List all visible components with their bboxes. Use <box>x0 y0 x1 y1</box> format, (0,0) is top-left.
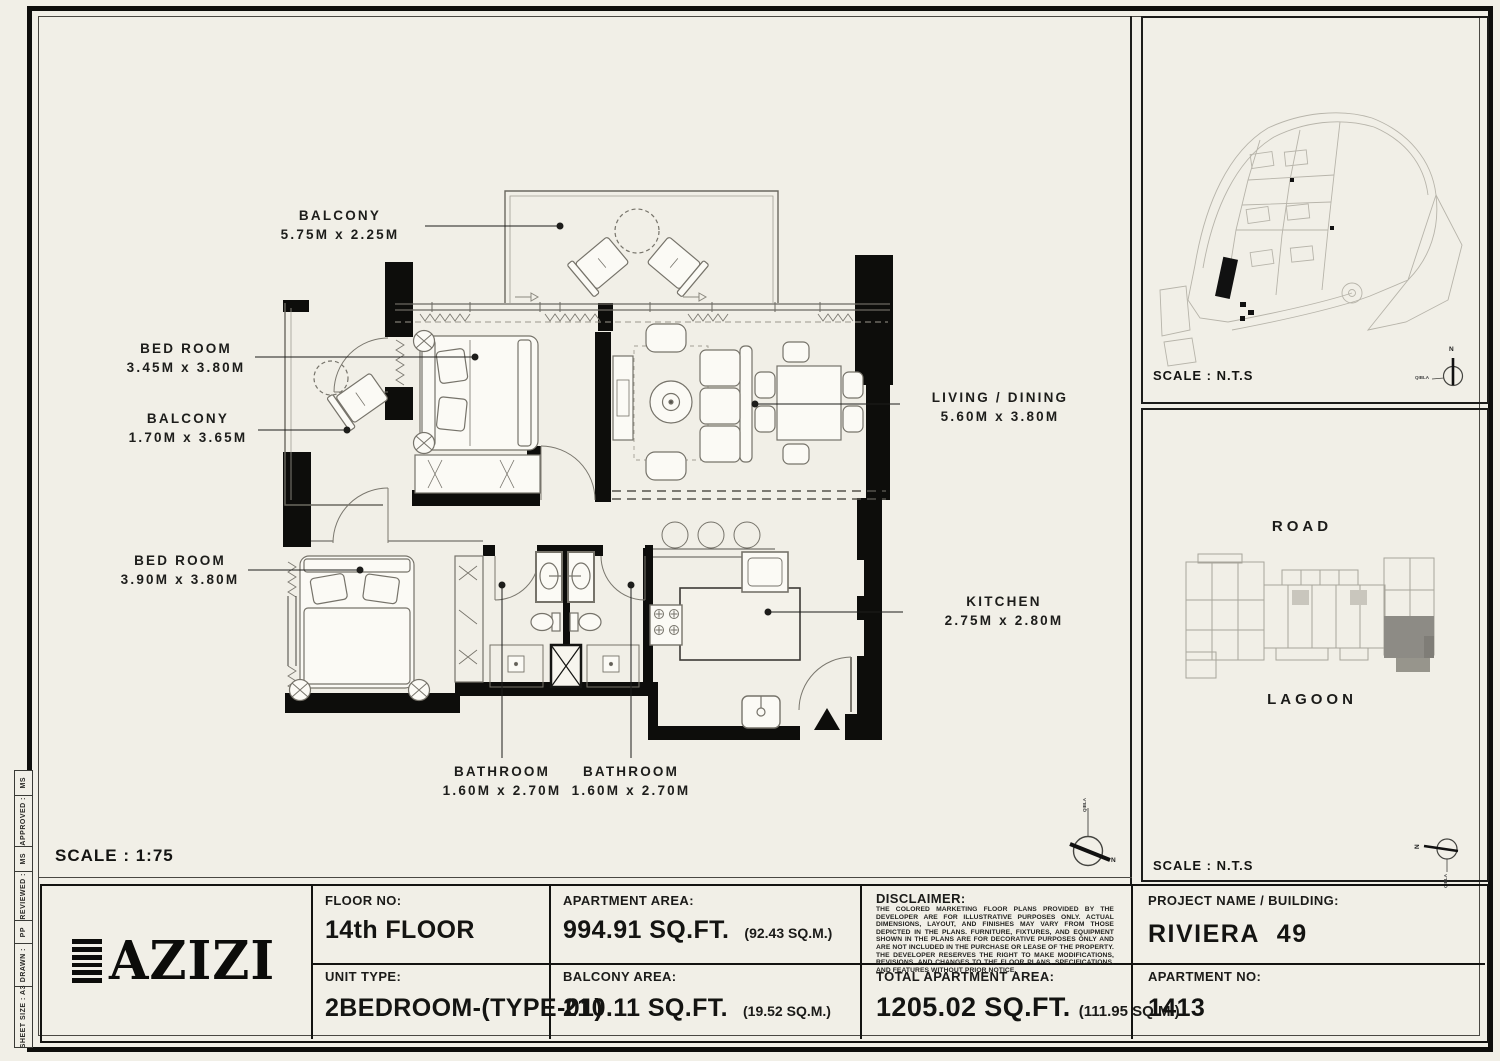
project-name-value: RIVIERA 49 <box>1148 920 1308 949</box>
revision-cell: MS <box>14 770 33 795</box>
revision-cell: MS <box>14 846 33 871</box>
disclaimer-label: DISCLAIMER: <box>876 891 966 906</box>
revision-cell: SHEET SIZE : A3 <box>14 986 33 1048</box>
lagoon-label: LAGOON <box>1212 691 1412 708</box>
location-map-scale-label: SCALE : N.T.S <box>1153 858 1253 873</box>
compass-north-label: N <box>1111 857 1116 864</box>
room-label-balcony-top: BALCONY5.75M x 2.25M <box>240 206 440 244</box>
room-label-bedroom-2: BED ROOM3.90M x 3.80M <box>80 551 280 589</box>
apartment-area-value-row: 994.91 SQ.FT. (92.43 SQ.M.) <box>563 916 832 945</box>
balcony-area-metric: (19.52 SQ.M.) <box>743 1003 831 1019</box>
apartment-no-value: 1413 <box>1148 994 1205 1023</box>
site-map-compass-qibla: QIBLA <box>1415 375 1429 380</box>
compass-qibla-label: QIBLA <box>1082 798 1087 812</box>
total-area-value-row: 1205.02 SQ.FT. (111.95 SQ.M.) <box>876 992 1180 1023</box>
total-area-value: 1205.02 SQ.FT. <box>876 992 1071 1023</box>
apartment-area-metric: (92.43 SQ.M.) <box>744 925 832 941</box>
road-label: ROAD <box>1202 518 1402 535</box>
apartment-no-label: APARTMENT NO: <box>1148 969 1261 984</box>
location-map-compass-north: N <box>1414 844 1421 849</box>
apartment-area-label: APARTMENT AREA: <box>563 893 694 908</box>
title-block-divider <box>311 884 313 1039</box>
room-label-living-dining: LIVING / DINING5.60M x 3.80M <box>900 388 1100 426</box>
azizi-logo-bars-icon <box>72 939 102 983</box>
room-label-bathroom-2: BATHROOM1.60M x 2.70M <box>531 762 731 800</box>
balcony-area-value-row: 210.11 SQ.FT. (19.52 SQ.M.) <box>563 994 831 1023</box>
floor-no-label: FLOOR NO: <box>325 893 402 908</box>
project-name-label: PROJECT NAME / BUILDING: <box>1148 893 1339 908</box>
plan-scale-label: SCALE : 1:75 <box>55 846 174 866</box>
revision-strip: MS APPROVED : MS REVIEWED : PP DRAWN : S… <box>14 770 33 1048</box>
title-block-divider <box>860 884 862 1039</box>
azizi-logo: AZIZI <box>72 930 282 992</box>
disclaimer-text: THE COLORED MARKETING FLOOR PLANS PROVID… <box>876 906 1114 974</box>
room-label-balcony-left: BALCONY1.70M x 3.65M <box>88 409 288 447</box>
balcony-area-label: BALCONY AREA: <box>563 969 677 984</box>
site-map-panel <box>1141 16 1489 404</box>
unit-type-value: 2BEDROOM-(TYPE-01) <box>325 994 603 1023</box>
site-map-compass-north: N <box>1449 346 1454 353</box>
azizi-logo-text: AZIZI <box>109 935 275 988</box>
revision-cell: REVIEWED : <box>14 871 33 920</box>
revision-cell: PP <box>14 920 33 943</box>
room-label-kitchen: KITCHEN2.75M x 2.80M <box>904 592 1104 630</box>
plan-bottom-divider <box>38 877 1132 878</box>
floor-no-value: 14th FLOOR <box>325 916 475 945</box>
site-map-scale-label: SCALE : N.T.S <box>1153 368 1253 383</box>
revision-cell: DRAWN : <box>14 943 33 986</box>
revision-cell: APPROVED : <box>14 795 33 846</box>
plan-sidebar-divider <box>1130 16 1132 884</box>
balcony-area-value: 210.11 SQ.FT. <box>563 994 728 1023</box>
unit-type-label: UNIT TYPE: <box>325 969 401 984</box>
apartment-area-value: 994.91 SQ.FT. <box>563 916 729 945</box>
floorplan-sheet: { "page": { "bg": "#f0eee5", "ink": "#14… <box>0 0 1500 1061</box>
location-map-panel <box>1141 408 1489 882</box>
room-label-bedroom-1: BED ROOM3.45M x 3.80M <box>86 339 286 377</box>
total-area-label: TOTAL APARTMENT AREA: <box>876 969 1054 984</box>
